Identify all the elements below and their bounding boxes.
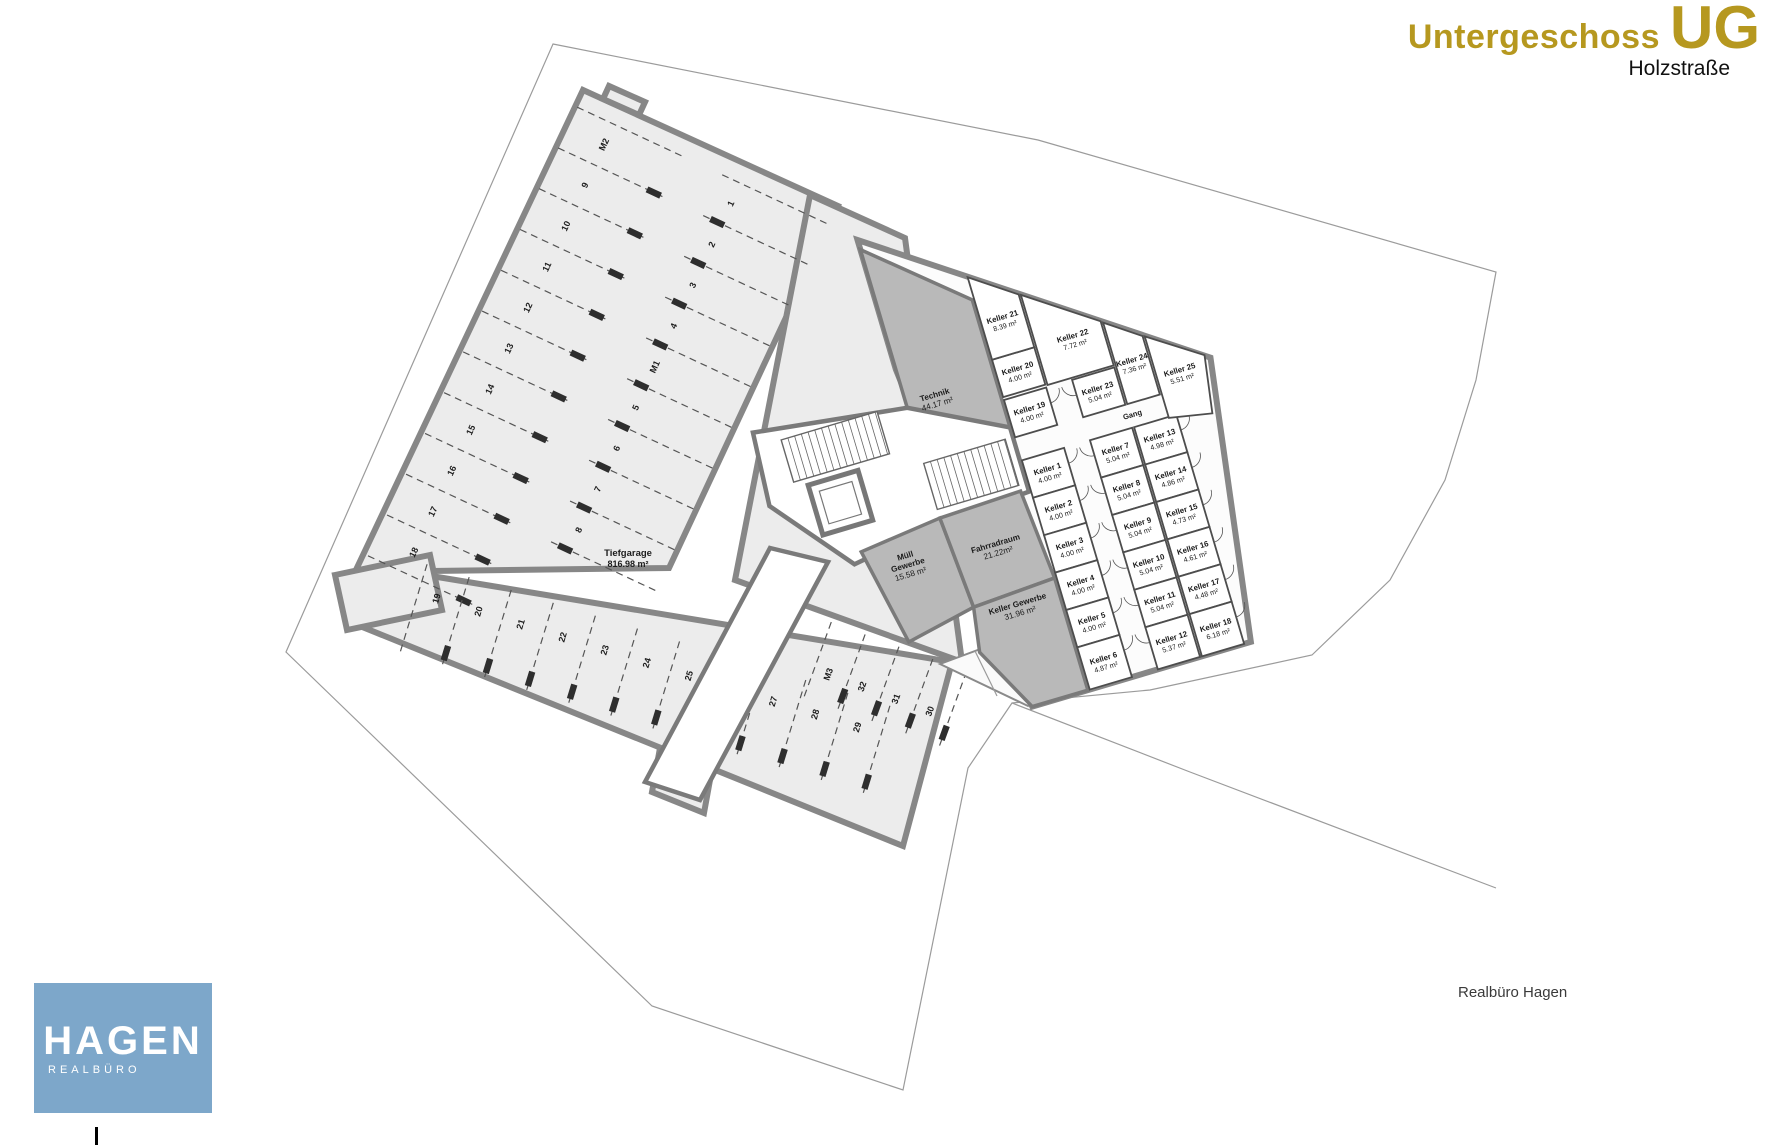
- floor-name: Untergeschoss: [1408, 18, 1660, 57]
- corner-mark: [95, 1127, 98, 1145]
- credit-text: Realbüro Hagen: [1458, 984, 1567, 1001]
- garage-labels: Tiefgarage816.98 m²: [604, 548, 652, 569]
- floor-plan-page: M29101112131415161718 1234M15678 1920212…: [0, 0, 1770, 1145]
- boundary-path-line: [1012, 703, 1496, 888]
- title-block: Untergeschoss UG Holzstraße: [1408, 2, 1760, 81]
- logo-title: HAGEN: [43, 1021, 202, 1061]
- logo-subtitle: REALBÜRO: [48, 1064, 141, 1076]
- garage-area: 816.98 m²: [607, 559, 648, 569]
- garage-name: Tiefgarage: [604, 548, 652, 559]
- hagen-logo: HAGEN REALBÜRO: [34, 983, 212, 1113]
- floor-abbr: UG: [1670, 2, 1760, 53]
- elevator-shaft: [808, 470, 873, 535]
- title-row: Untergeschoss UG: [1408, 2, 1760, 57]
- street-label: Holzstraße: [1408, 57, 1730, 81]
- floor-plan-canvas: M29101112131415161718 1234M15678 1920212…: [0, 0, 1770, 1145]
- stall-marker: [939, 725, 950, 741]
